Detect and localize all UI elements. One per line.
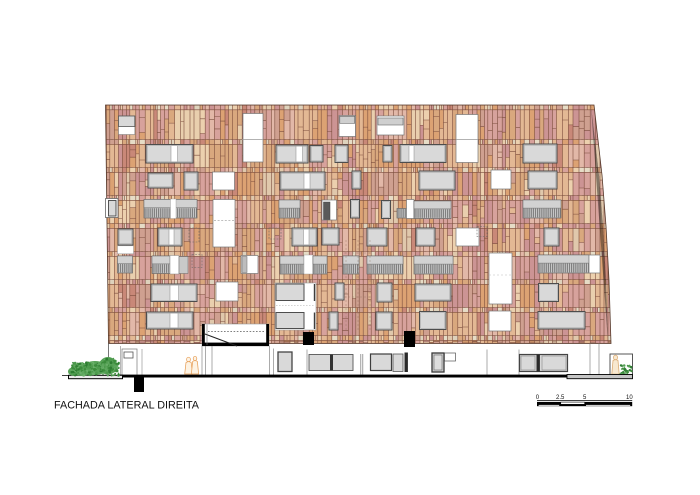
svg-text:FACHADA LATERAL DIREITA: FACHADA LATERAL DIREITA: [54, 400, 200, 412]
